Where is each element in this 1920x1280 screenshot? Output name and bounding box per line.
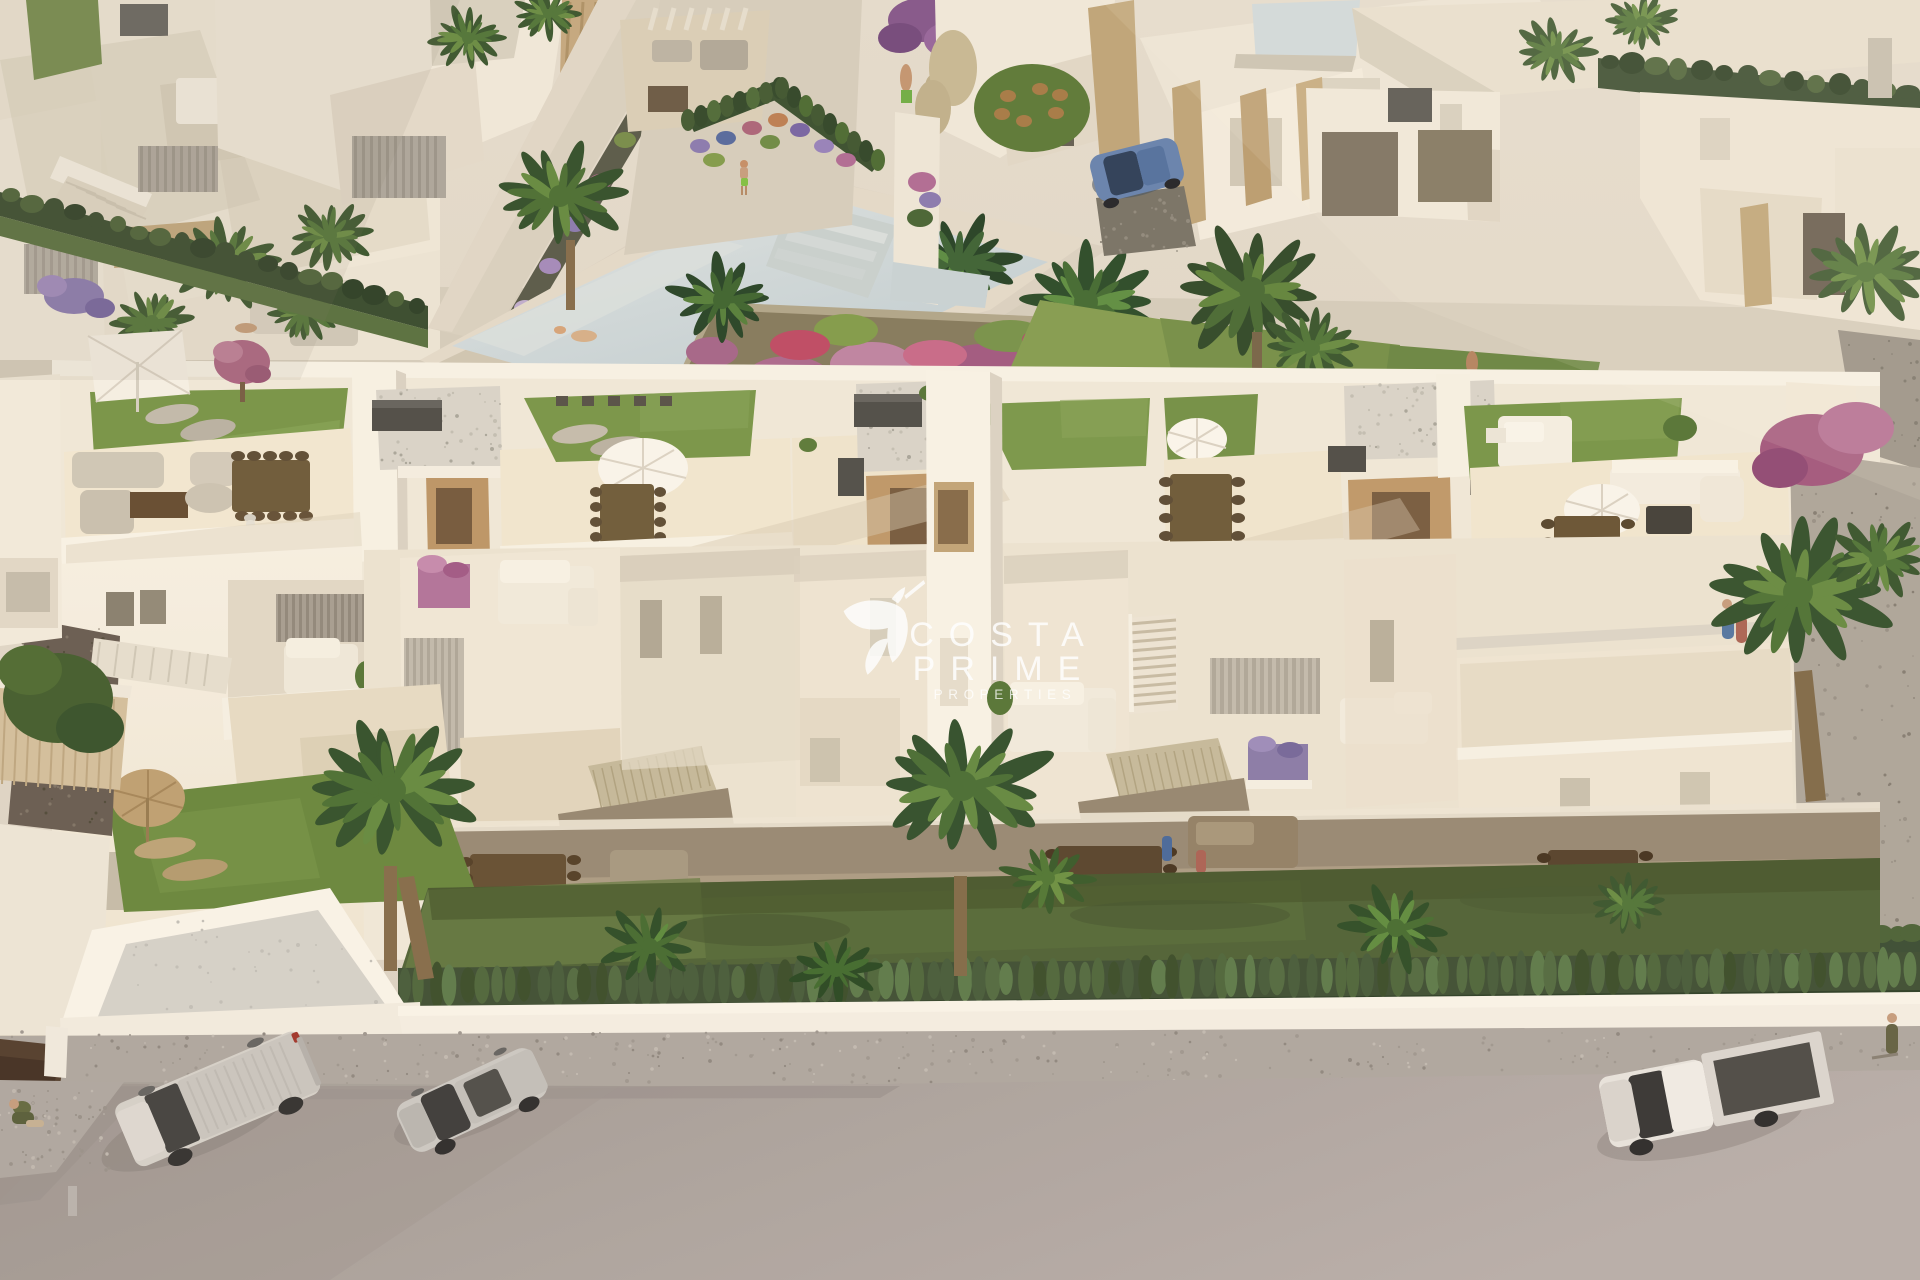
svg-text:COSTA: COSTA bbox=[909, 616, 1099, 654]
svg-text:PROPERTIES: PROPERTIES bbox=[934, 687, 1077, 702]
svg-text:PRIME: PRIME bbox=[913, 650, 1096, 688]
